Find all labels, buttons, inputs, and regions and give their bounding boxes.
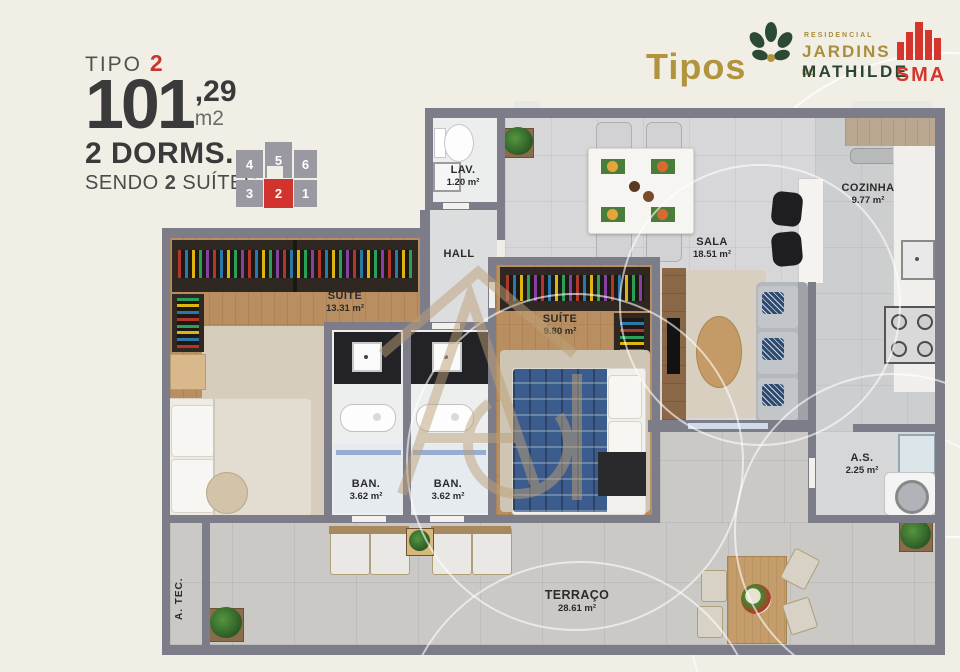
sma-buildings-icon	[897, 20, 945, 60]
tipos-title: Tipos	[646, 46, 746, 88]
label-atec: A. TEC.	[174, 548, 185, 620]
leaf-icon	[746, 20, 796, 74]
floorplan-page: TIPO 2 101 ,29 m2 2 DORMS. SENDO 2 SUÍTE…	[0, 0, 960, 672]
label-lav: LAV.1.20 m²	[433, 164, 493, 189]
label-cozinha: COZINHA9.77 m²	[818, 182, 918, 207]
watermark-logo	[372, 252, 590, 510]
label-terraco: TERRAÇO28.61 m²	[527, 588, 627, 614]
sma-label: SMA	[893, 64, 949, 87]
brand-residencial: RESIDENCIAL	[804, 32, 873, 39]
brand-logo: RESIDENCIAL JARDINS DO MATHILDE	[742, 16, 892, 94]
label-sala: SALA18.51 m²	[672, 236, 752, 261]
label-as: A.S.2.25 m²	[827, 452, 897, 477]
sma-logo: SMA	[893, 20, 949, 90]
